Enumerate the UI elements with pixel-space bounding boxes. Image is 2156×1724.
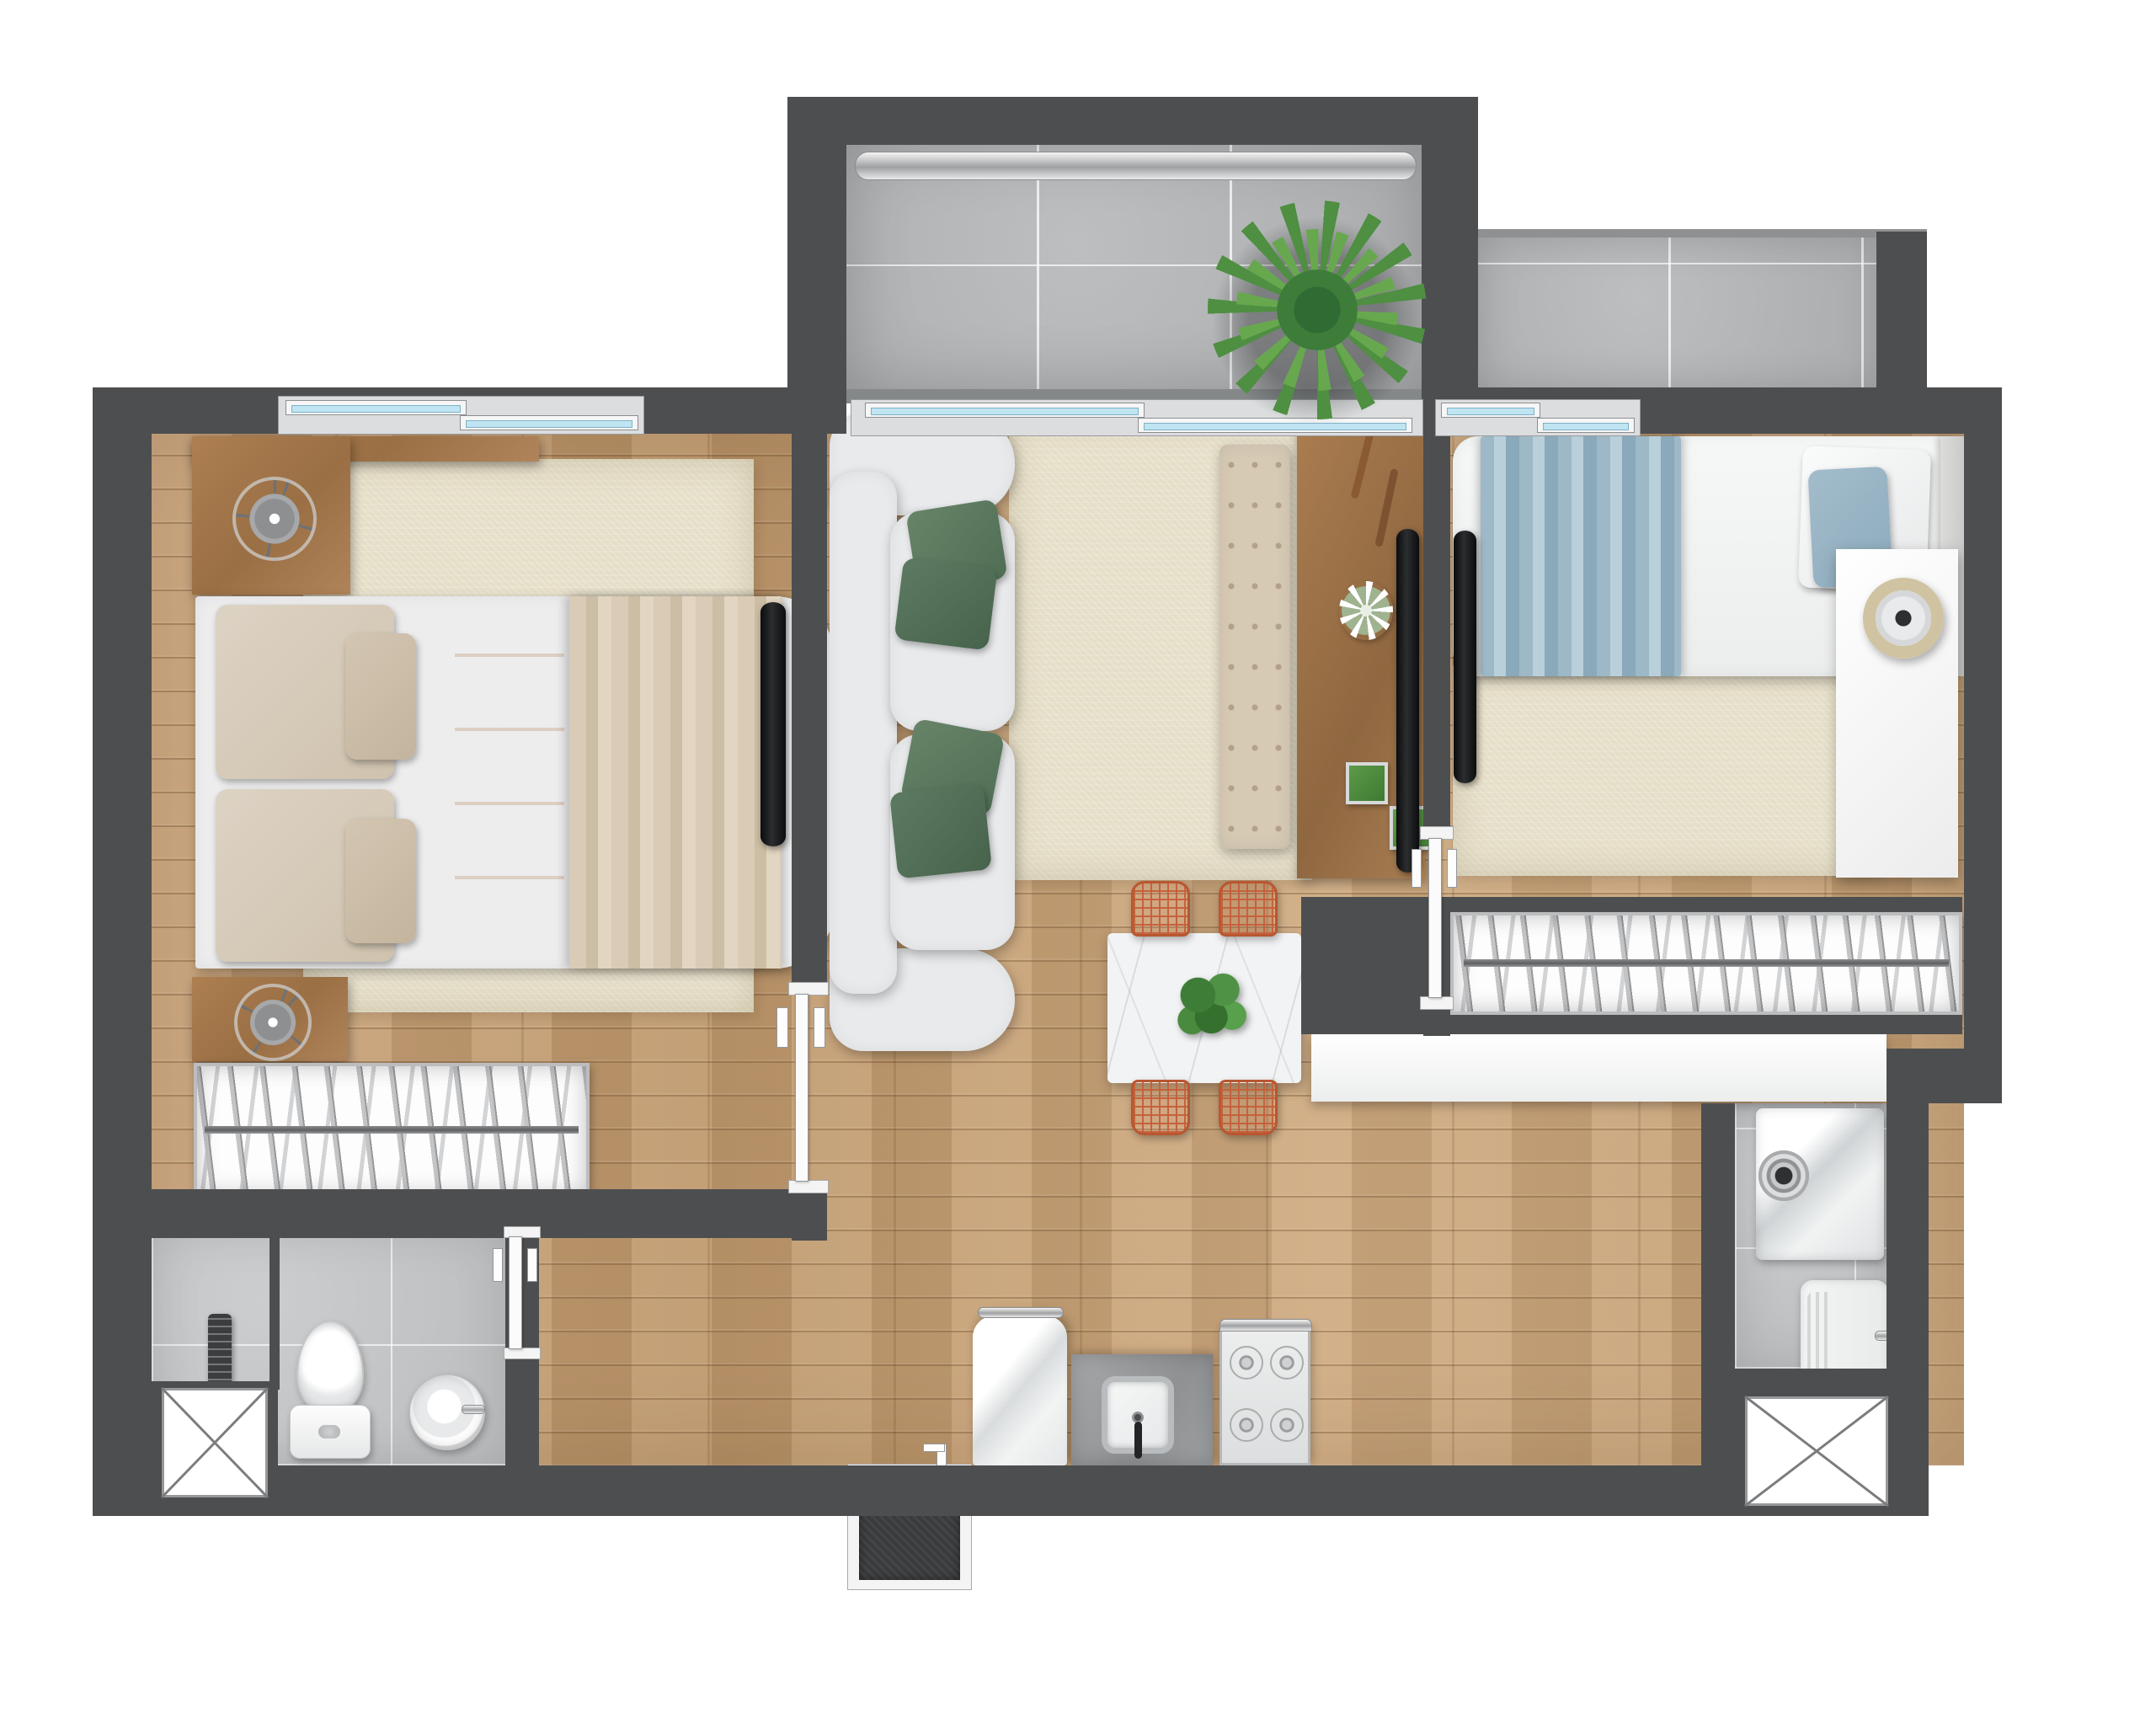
wall-left <box>93 387 152 1516</box>
door-handle <box>1412 849 1422 888</box>
sofa <box>830 413 1017 1051</box>
window-glass <box>1543 423 1629 430</box>
bathroom-door <box>509 1236 522 1349</box>
toilet-flush-button <box>318 1425 340 1438</box>
wall-bedroom1-bathroom <box>93 1189 825 1238</box>
kitchen-counter <box>1311 1034 1886 1102</box>
stove-burner <box>1270 1408 1304 1442</box>
dining-chair <box>1131 881 1190 937</box>
bedroom2-rug <box>1453 665 1878 876</box>
bedroom2-window <box>1435 399 1641 436</box>
dining-chair <box>1219 1080 1278 1135</box>
tv-icon <box>1396 529 1419 873</box>
bed-pillow-accent-2 <box>345 819 416 943</box>
dining-chair <box>1219 881 1278 937</box>
wall-balcony-top <box>787 97 1478 145</box>
wall-balcony-left <box>787 97 846 434</box>
dining-centerpiece-plant <box>1176 969 1250 1044</box>
balcony-handrail <box>855 152 1417 180</box>
plant-leaves-core <box>1277 270 1358 350</box>
washer-drum-icon <box>1757 1149 1811 1203</box>
door-handle <box>814 1007 825 1048</box>
tv-icon <box>1454 531 1476 783</box>
console-flowers <box>1339 581 1393 640</box>
balcony-plant <box>1203 200 1432 435</box>
stove-burner <box>1230 1408 1263 1442</box>
door-jamb <box>1420 996 1454 1010</box>
bedroom1-door <box>795 994 808 1182</box>
bed-pillow-accent-1 <box>345 633 416 760</box>
door-handle <box>527 1248 537 1282</box>
sofa-cushion-green-2 <box>894 558 997 651</box>
fridge-handle <box>978 1307 1064 1318</box>
entry-door-handle <box>923 1444 945 1452</box>
window-pane <box>1441 403 1540 418</box>
window-glass <box>466 420 632 428</box>
fan-icon <box>1863 578 1944 659</box>
wall-living-bedroom2 <box>1423 434 1450 838</box>
shower-column <box>208 1314 232 1388</box>
door-jamb <box>788 1180 829 1193</box>
wall-shower-divider <box>269 1225 280 1390</box>
sofa-cushion-green-4 <box>889 783 992 878</box>
bedroom1-window <box>278 396 644 435</box>
door-handle <box>776 1007 788 1048</box>
kitchen-faucet-neck <box>1134 1422 1142 1459</box>
bed-blanket <box>569 596 782 969</box>
wall-ac-ledge-right <box>1876 232 1927 389</box>
single-bed-blanket <box>1481 436 1681 676</box>
ac-ledge-edge-line <box>1478 229 1927 238</box>
door-jamb <box>504 1348 541 1359</box>
console-plant-cube-1 <box>1346 762 1388 804</box>
bedroom2-wardrobe <box>1450 912 1962 1015</box>
shaft-left <box>162 1388 268 1497</box>
wall-right-bedroom2 <box>1964 387 2002 1053</box>
door-pane <box>865 403 1145 418</box>
floor-plan <box>0 0 2156 1724</box>
wall-right-jog <box>1886 1049 2002 1103</box>
basin-faucet <box>462 1405 485 1414</box>
stove-top-bar <box>1219 1319 1312 1332</box>
shaft-right <box>1745 1396 1888 1506</box>
door-handle <box>1447 849 1457 888</box>
window-glass <box>291 405 461 413</box>
fan-icon <box>232 477 317 561</box>
window-pane <box>286 400 467 415</box>
tv-icon <box>760 602 786 846</box>
stove-burner <box>1270 1346 1304 1380</box>
fan-icon <box>234 984 312 1061</box>
window-pane <box>1537 418 1635 433</box>
door-handle <box>493 1248 503 1282</box>
media-bench <box>1219 445 1290 849</box>
stove-burner <box>1230 1346 1263 1380</box>
bedroom1-wardrobe <box>194 1063 590 1198</box>
bedroom2-door <box>1428 838 1442 998</box>
wall-wardrobe2-bottom-strip <box>1450 1015 1962 1034</box>
wall-bottom <box>93 1465 1929 1516</box>
sofa-back <box>830 472 897 994</box>
wall-bedroom1-living <box>792 434 827 994</box>
door-glass <box>871 408 1139 415</box>
ac-ledge-floor <box>1478 238 1876 389</box>
bed-sheet-stripes <box>455 615 564 950</box>
dining-chair <box>1131 1080 1190 1135</box>
window-glass <box>1447 408 1534 415</box>
fridge <box>973 1316 1067 1465</box>
wall-laundry-left <box>1701 1103 1735 1369</box>
wall-wardrobe2-top-strip <box>1450 897 1962 912</box>
window-pane <box>460 415 638 430</box>
